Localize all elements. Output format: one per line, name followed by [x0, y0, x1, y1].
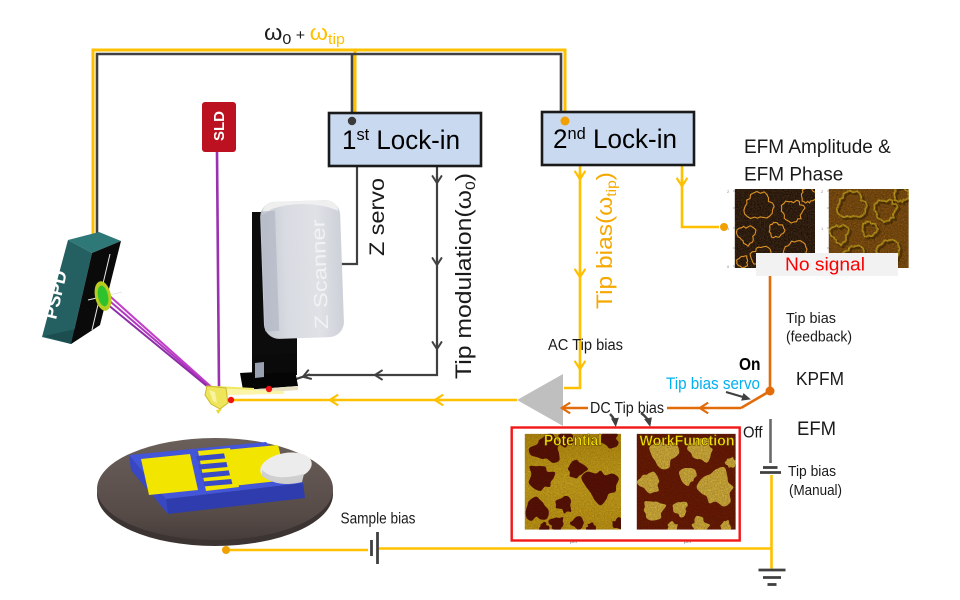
svg-text:2: 2: [727, 189, 730, 194]
svg-text:EFM: EFM: [797, 419, 836, 440]
svg-text:2: 2: [821, 189, 824, 194]
svg-text:KPFM: KPFM: [796, 368, 844, 389]
svg-text:Sample bias: Sample bias: [341, 511, 416, 528]
svg-text:(feedback): (feedback): [786, 329, 852, 346]
svg-text:Tip modulation(ω0): Tip modulation(ω0): [451, 173, 478, 379]
svg-text:0: 0: [727, 264, 730, 269]
svg-text:Off: Off: [743, 425, 763, 442]
svg-text:1: 1: [727, 226, 730, 231]
svg-text:On: On: [739, 354, 761, 374]
svg-text:EFM Amplitude &: EFM Amplitude &: [744, 137, 891, 158]
svg-text:AC Tip bias: AC Tip bias: [548, 337, 623, 354]
svg-text:Tip bias(ωtip): Tip bias(ωtip): [592, 172, 619, 309]
svg-text:WorkFunction: WorkFunction: [640, 433, 735, 450]
svg-text:1: 1: [821, 226, 824, 231]
svg-text:Tip bias: Tip bias: [786, 310, 836, 327]
svg-text:Potential: Potential: [544, 433, 602, 450]
svg-text:Z Scanner: Z Scanner: [308, 218, 333, 330]
svg-text:(Manual): (Manual): [789, 482, 842, 499]
svg-text:No signal: No signal: [785, 254, 865, 275]
svg-text:ω0 + ωtip: ω0 + ωtip: [264, 20, 345, 48]
svg-text:EFM Phase: EFM Phase: [744, 165, 843, 186]
svg-text:DC Tip bias: DC Tip bias: [590, 400, 664, 417]
svg-text:Tip bias: Tip bias: [788, 463, 836, 480]
svg-text:Tip bias servo: Tip bias servo: [666, 375, 760, 393]
svg-text:SLD: SLD: [211, 111, 228, 141]
svg-text:Z servo: Z servo: [366, 178, 389, 256]
